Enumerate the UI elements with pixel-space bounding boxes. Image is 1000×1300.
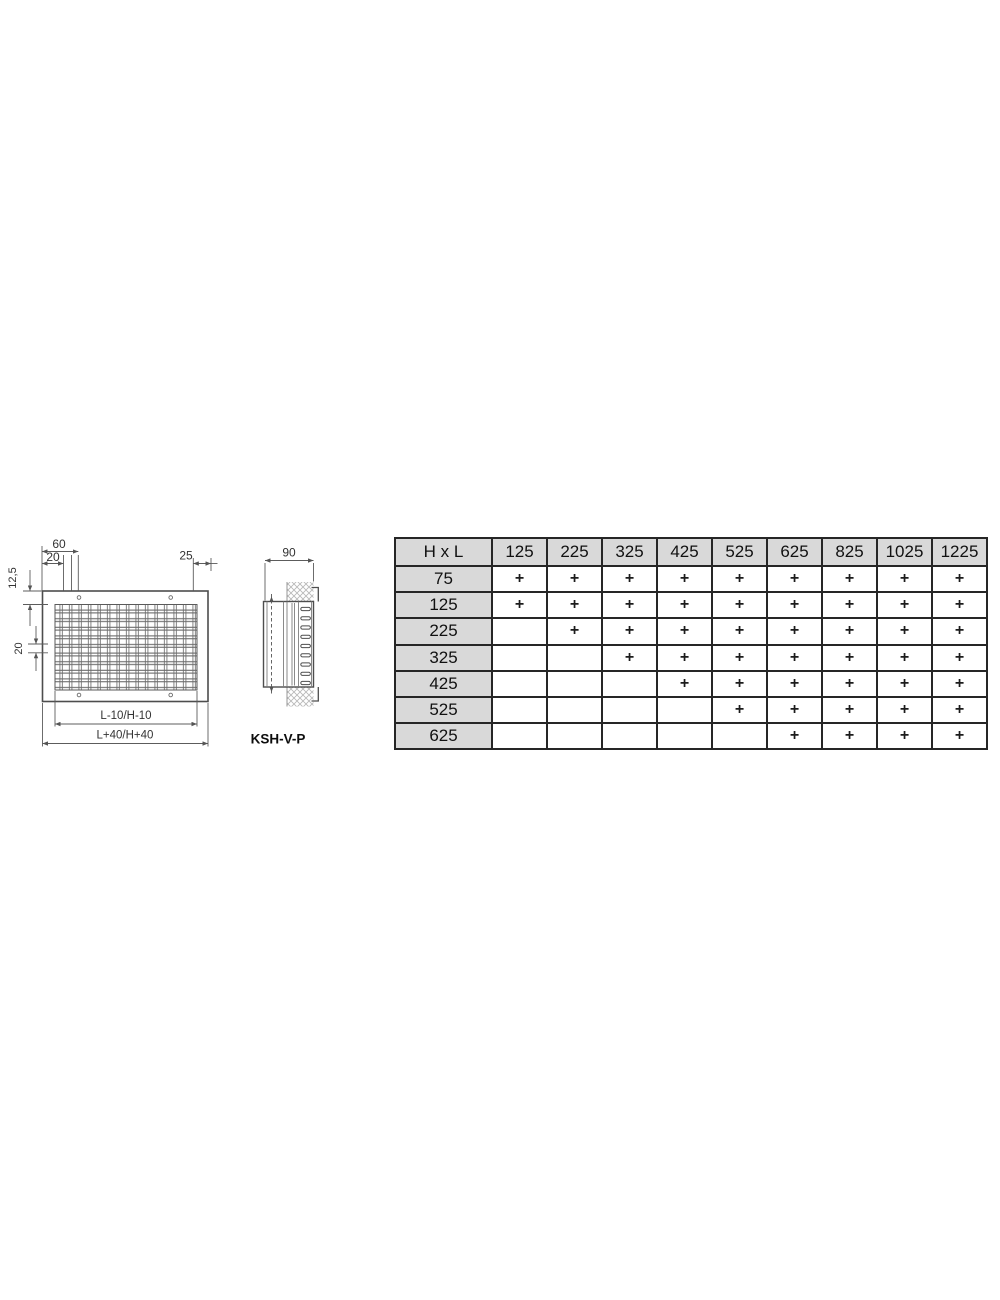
availability-cell: + [492,592,547,618]
availability-cell: + [877,697,932,723]
dim-label-inner: L-10/H-10 [100,710,151,722]
screw-hole [169,596,173,600]
louver-slats [301,607,311,684]
dim-label-outer: L+40/H+40 [97,730,154,742]
availability-cell: + [657,566,712,592]
row-header: 325 [395,645,492,671]
availability-cell: + [877,592,932,618]
screw-hole [77,596,81,600]
availability-cell [602,697,657,723]
availability-cell [712,723,767,749]
availability-cell: + [712,592,767,618]
column-header: 625 [767,538,822,566]
availability-cell [547,723,602,749]
column-header: 425 [657,538,712,566]
dim-label-20-left: 20 [13,642,25,654]
availability-cell [492,671,547,697]
column-header: 225 [547,538,602,566]
availability-cell [657,723,712,749]
table-row: 75 + + + + + + + + + [395,566,987,592]
table-row: 225 + + + + + + + + [395,618,987,644]
availability-cell: + [712,566,767,592]
availability-cell: + [547,618,602,644]
availability-cell: + [877,566,932,592]
column-header: 125 [492,538,547,566]
availability-cell [492,618,547,644]
availability-cell [547,671,602,697]
column-header: 1225 [932,538,987,566]
availability-cell: + [767,697,822,723]
model-label: KSH-V-P [251,732,306,747]
dim-label-12-5: 12,5 [7,567,19,588]
availability-cell: + [822,671,877,697]
row-header: 125 [395,592,492,618]
availability-cell: + [767,592,822,618]
size-availability-table: H x L 125 225 325 425 525 625 825 1025 1… [394,537,988,750]
availability-cell: + [767,671,822,697]
availability-cell: + [932,592,987,618]
side-view: 90 KSH-V-P [251,546,319,747]
availability-cell: + [877,723,932,749]
availability-cell: + [712,618,767,644]
table-row: 325 + + + + + + + [395,645,987,671]
availability-cell: + [602,645,657,671]
technical-drawing: 60 20 25 12,5 [0,530,340,760]
dim-label-90: 90 [282,546,296,560]
availability-cell: + [932,697,987,723]
availability-cell: + [602,566,657,592]
wall-hatch-bottom [287,687,314,707]
availability-cell: + [822,723,877,749]
availability-cell: + [547,592,602,618]
screw-hole [169,693,173,697]
grille-drawing-svg: 60 20 25 12,5 [0,530,340,760]
availability-cell: + [877,618,932,644]
dim-label-60: 60 [52,537,66,551]
availability-cell: + [932,566,987,592]
availability-cell: + [492,566,547,592]
column-header: 325 [602,538,657,566]
availability-cell [602,723,657,749]
dim-label-20-top: 20 [46,550,60,564]
availability-cell: + [547,566,602,592]
availability-cell: + [822,618,877,644]
availability-cell: + [822,566,877,592]
availability-cell: + [657,592,712,618]
availability-cell [547,645,602,671]
availability-cell [547,697,602,723]
table-row: 625 + + + + [395,723,987,749]
column-header: 525 [712,538,767,566]
availability-cell: + [877,671,932,697]
availability-cell [602,671,657,697]
wall-hatch-top [287,582,314,602]
availability-cell [492,697,547,723]
availability-cell: + [932,671,987,697]
availability-cell: + [932,645,987,671]
availability-cell: + [932,723,987,749]
availability-cell [492,723,547,749]
row-header: 225 [395,618,492,644]
column-header: 1025 [877,538,932,566]
availability-cell: + [712,645,767,671]
catalog-page: 60 20 25 12,5 [0,0,1000,1300]
corner-header: H x L [395,538,492,566]
screw-hole [77,693,81,697]
grille-mesh [55,605,197,691]
table-header-row: H x L 125 225 325 425 525 625 825 1025 1… [395,538,987,566]
dim-label-25: 25 [179,549,193,563]
table-row: 425 + + + + + + [395,671,987,697]
row-header: 525 [395,697,492,723]
availability-cell: + [657,671,712,697]
availability-cell: + [932,618,987,644]
availability-cell: + [877,645,932,671]
row-header: 75 [395,566,492,592]
table-row: 125 + + + + + + + + + [395,592,987,618]
availability-cell: + [822,645,877,671]
availability-cell: + [767,618,822,644]
availability-cell: + [657,645,712,671]
availability-cell: + [657,618,712,644]
dimension-25 [193,558,217,591]
availability-cell [492,645,547,671]
availability-cell: + [767,566,822,592]
availability-cell: + [767,645,822,671]
availability-cell: + [602,592,657,618]
availability-cell: + [822,592,877,618]
availability-cell: + [712,697,767,723]
row-header: 425 [395,671,492,697]
availability-cell: + [712,671,767,697]
availability-cell: + [822,697,877,723]
availability-cell [657,697,712,723]
row-header: 625 [395,723,492,749]
availability-cell: + [767,723,822,749]
availability-cell: + [602,618,657,644]
column-header: 825 [822,538,877,566]
front-view: 60 20 25 12,5 [7,537,218,747]
table-row: 525 + + + + + [395,697,987,723]
